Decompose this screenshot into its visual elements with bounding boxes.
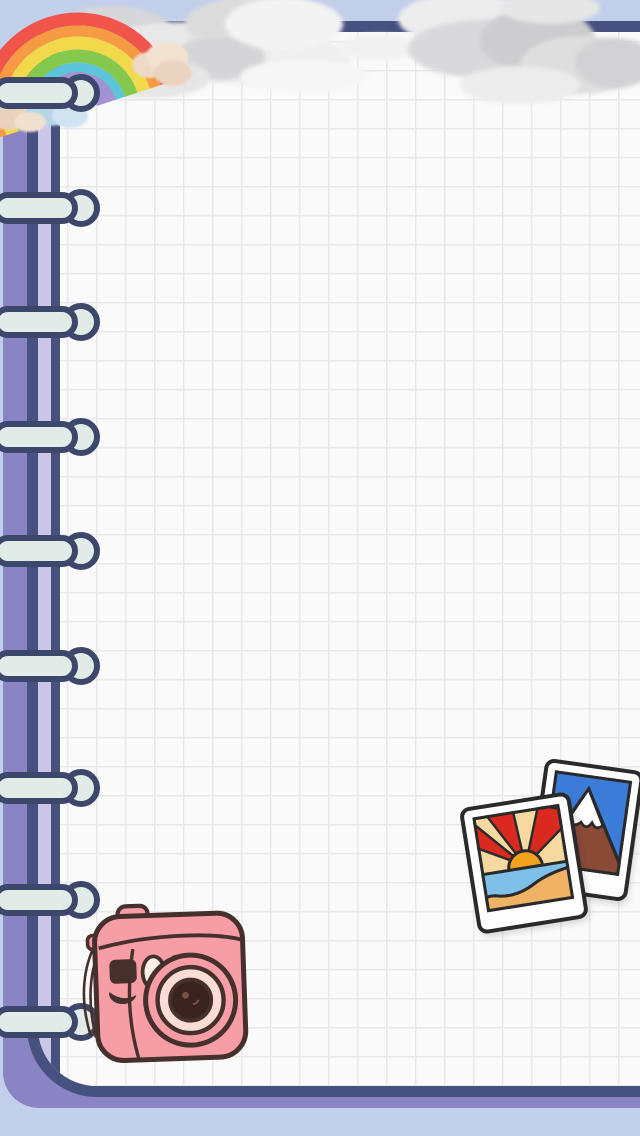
binder-ring <box>0 185 100 231</box>
binder-ring <box>0 299 100 345</box>
polaroid-sunset-sticker <box>459 791 590 935</box>
sunset-photo <box>472 804 574 913</box>
cloud <box>154 60 192 86</box>
binder-ring-bar <box>0 421 78 453</box>
camera-sticker <box>73 898 257 1068</box>
binder-ring-bar <box>0 306 78 338</box>
binder-ring-bar <box>0 650 78 682</box>
binder-ring <box>0 414 100 460</box>
binder-ring <box>0 643 100 689</box>
camera-viewfinder <box>109 959 137 984</box>
binder-ring-bar <box>0 884 78 916</box>
cloud <box>460 66 580 104</box>
binder-ring <box>0 765 100 811</box>
binder-ring-bar <box>0 77 78 109</box>
cloud <box>225 0 343 50</box>
binder-ring <box>0 70 100 116</box>
binder-ring-bar <box>0 192 78 224</box>
cloud <box>240 60 370 92</box>
binder-ring-bar <box>0 1006 78 1038</box>
binder-ring <box>0 528 100 574</box>
binder-ring-bar <box>0 772 78 804</box>
binder-ring-bar <box>0 535 78 567</box>
wallpaper-scene: { "scene": { "description": "Cute statio… <box>0 0 640 1136</box>
